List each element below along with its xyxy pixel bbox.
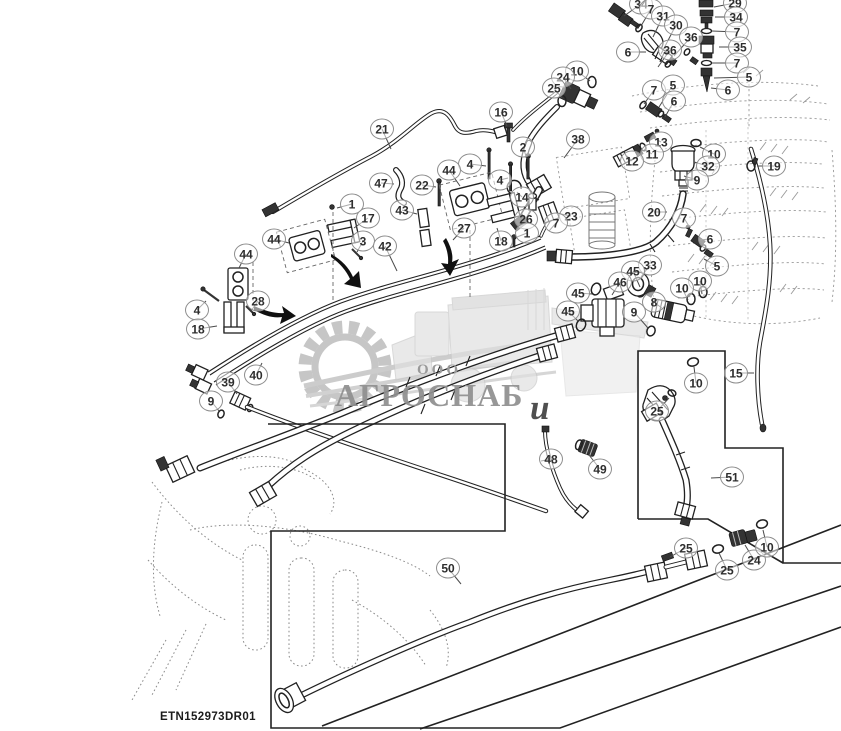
callout-7: 7 — [672, 208, 696, 229]
watermark-overlay-letter: и — [530, 388, 549, 428]
callout-44: 44 — [437, 160, 461, 181]
callout-10: 10 — [684, 373, 708, 394]
callout-49: 49 — [588, 459, 612, 480]
callout-12: 12 — [620, 151, 644, 172]
callout-42: 42 — [373, 236, 397, 257]
callout-6: 6 — [716, 80, 740, 101]
callout-6: 6 — [698, 229, 722, 250]
callout-46: 46 — [608, 272, 632, 293]
callout-36: 36 — [658, 40, 682, 61]
callout-51: 51 — [720, 467, 744, 488]
callout-18: 18 — [186, 319, 210, 340]
callout-43: 43 — [390, 200, 414, 221]
callout-10: 10 — [755, 537, 779, 558]
clamp-44-mid — [276, 219, 335, 273]
callout-10: 10 — [670, 278, 694, 299]
callout-14: 14 — [510, 187, 534, 208]
callout-1: 1 — [515, 223, 539, 244]
callout-6: 6 — [616, 42, 640, 63]
callout-25: 25 — [542, 78, 566, 99]
callout-4: 4 — [185, 300, 209, 321]
spring-part — [589, 192, 615, 249]
frame-main-sheet — [268, 424, 841, 728]
callout-39: 39 — [216, 372, 240, 393]
callout-25: 25 — [645, 401, 669, 422]
tube-from-39 — [247, 407, 546, 511]
callout-48: 48 — [539, 449, 563, 470]
callout-4: 4 — [488, 170, 512, 191]
callout-9: 9 — [685, 170, 709, 191]
callout-36: 36 — [679, 27, 703, 48]
callout-6: 6 — [662, 91, 686, 112]
callout-9: 9 — [622, 302, 646, 323]
tube-50 — [271, 550, 707, 716]
callout-38: 38 — [566, 129, 590, 150]
callout-44: 44 — [234, 244, 258, 265]
tube-16-link — [513, 93, 556, 130]
bracket-18-left — [224, 302, 244, 333]
callout-25: 25 — [715, 560, 739, 581]
callout-50: 50 — [436, 558, 460, 579]
callout-47: 47 — [369, 173, 393, 194]
callout-1: 1 — [340, 194, 364, 215]
strip-47 — [396, 170, 404, 203]
callout-40: 40 — [244, 365, 268, 386]
drawing-number: ETN152973DR01 — [160, 711, 256, 723]
fitting-49 — [574, 438, 598, 457]
callout-3: 3 — [351, 231, 375, 252]
callout-7: 7 — [544, 213, 568, 234]
hose-15 — [751, 149, 770, 432]
fitting-39 — [217, 391, 254, 419]
callout-44: 44 — [262, 229, 286, 250]
callout-28: 28 — [246, 291, 270, 312]
ghost-machine-bottom-left — [132, 457, 448, 701]
callout-18: 18 — [489, 231, 513, 252]
tube-48 — [542, 426, 588, 518]
callout-27: 27 — [452, 218, 476, 239]
callout-21: 21 — [370, 119, 394, 140]
direction-arrows — [254, 238, 459, 324]
watermark-company-name: АГРОСНАБ — [335, 377, 523, 414]
callout-25: 25 — [674, 538, 698, 559]
callout-22: 22 — [410, 175, 434, 196]
callout-2: 2 — [511, 137, 535, 158]
blocks-43 — [418, 208, 431, 246]
clamp-44-left — [228, 268, 248, 300]
callout-9: 9 — [199, 391, 223, 412]
callout-5: 5 — [737, 67, 761, 88]
frame-diagonal-2 — [420, 586, 841, 729]
callout-19: 19 — [762, 156, 786, 177]
callout-4: 4 — [458, 154, 482, 175]
callout-16: 16 — [489, 102, 513, 123]
callout-15: 15 — [724, 363, 748, 384]
clip-19 — [747, 157, 758, 171]
callout-45: 45 — [556, 301, 580, 322]
parts-diagram-page: ООО АГРОСНАБ и 6347313036362934735756102… — [0, 0, 841, 731]
callout-20: 20 — [642, 202, 666, 223]
